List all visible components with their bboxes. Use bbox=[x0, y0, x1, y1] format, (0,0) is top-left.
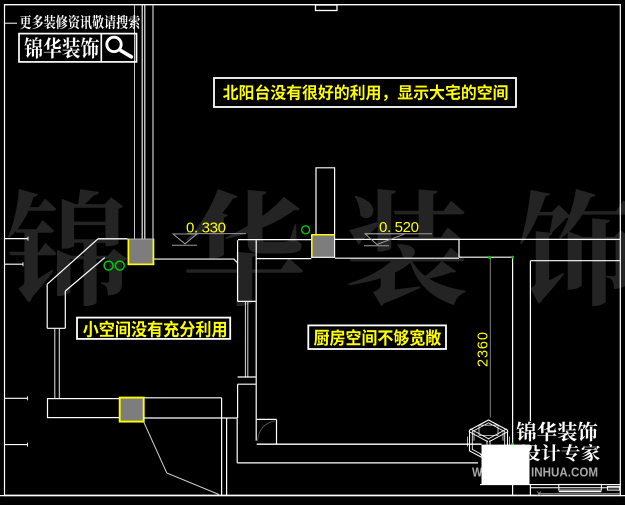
svg-text:0. 520: 0. 520 bbox=[379, 219, 419, 236]
svg-text:0. 330: 0. 330 bbox=[186, 220, 226, 237]
svg-text:INHUA.COM: INHUA.COM bbox=[531, 466, 598, 480]
svg-text:2360: 2360 bbox=[476, 332, 492, 367]
